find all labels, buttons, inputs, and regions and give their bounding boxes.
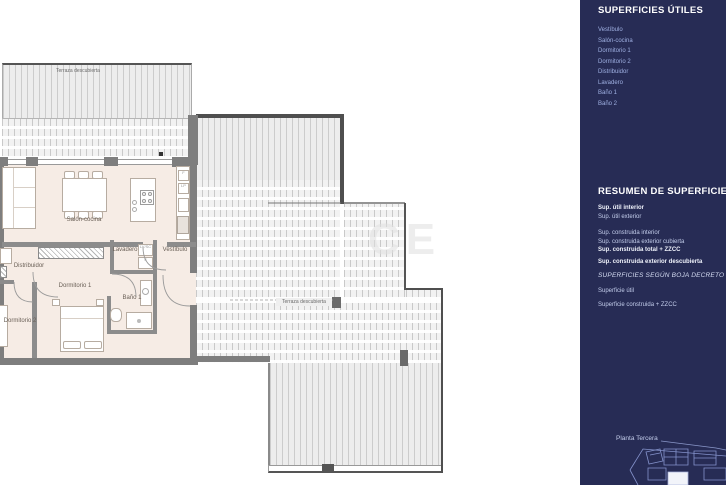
wardrobe — [38, 247, 104, 259]
railing-post — [322, 464, 334, 473]
fridge: F — [178, 170, 189, 181]
wall — [110, 240, 114, 274]
pantry-unit: LP — [178, 183, 189, 194]
nightstand — [96, 299, 104, 306]
burner — [148, 199, 152, 203]
wall — [340, 114, 344, 204]
wall — [110, 270, 157, 274]
resumen-line: Sup. construida interior — [598, 230, 660, 236]
watermark: CE — [368, 215, 441, 265]
label-lavadero: Lavadero — [111, 247, 139, 253]
terrace-main-deck — [196, 180, 340, 300]
sofa-line — [13, 168, 14, 228]
terrace-post — [400, 350, 408, 366]
wall — [0, 280, 14, 284]
sidebar: SUPERFICIES ÚTILES Vestíbulo Salón-cocin… — [580, 0, 726, 485]
toilet — [110, 308, 122, 322]
room-list-item: Salón-cocina — [598, 38, 633, 44]
bed-partial — [0, 305, 8, 347]
wall — [104, 157, 118, 166]
terrace-edge — [268, 363, 270, 473]
label-salon: Salón-cocina — [60, 217, 108, 223]
terrace-post — [332, 297, 341, 308]
sofa-line — [13, 187, 35, 188]
wall — [190, 165, 197, 273]
room-list-item: Vestíbulo — [598, 27, 623, 33]
terrace-railing — [268, 465, 441, 473]
section-marker — [159, 152, 163, 156]
label-dormitorio2: Dormitorio 2 — [2, 318, 38, 324]
nightstand — [52, 299, 60, 306]
resumen-line: Sup. útil exterior — [598, 214, 641, 220]
chair — [78, 171, 89, 179]
label-vestibulo: Vestíbulo — [158, 247, 192, 253]
sidebar-title: SUPERFICIES ÚTILES — [598, 5, 703, 16]
label-bano1: Baño 1 — [120, 295, 144, 301]
chair — [92, 171, 103, 179]
wall — [153, 240, 157, 274]
floorplan-page: F LP LV/SC S — [0, 0, 726, 485]
basin — [142, 288, 149, 295]
room-list-item: Baño 1 — [598, 90, 617, 96]
label-terrace-main: Terraza descubierta — [276, 298, 332, 306]
wall — [196, 356, 270, 362]
wall — [26, 157, 38, 166]
burner — [142, 199, 146, 203]
pillow — [63, 341, 81, 349]
terrace-edge — [441, 288, 443, 473]
terrace-main-deck — [406, 290, 443, 300]
burner — [142, 192, 146, 196]
room-list-item: Lavadero — [598, 80, 623, 86]
floor-label: Planta Tercera — [616, 435, 658, 442]
fixture-partial — [0, 266, 7, 278]
room-list-item: Dormitorio 2 — [598, 59, 631, 65]
decreto-title: SUPERFICIES SEGÚN BOJA DECRETO — [598, 272, 724, 279]
wall — [190, 305, 197, 358]
sink-bowl — [132, 200, 137, 205]
sofa — [2, 167, 36, 229]
dining-table — [62, 178, 107, 212]
chair — [64, 171, 75, 179]
sink-bowl — [132, 207, 137, 212]
terrace-lower-deck — [270, 363, 441, 465]
wall — [196, 114, 344, 118]
counter-sink — [178, 198, 189, 212]
room-list-item: Baño 2 — [598, 101, 617, 107]
room-list-item: Dormitorio 1 — [598, 48, 631, 54]
room-list-item: Distribuidor — [598, 69, 628, 75]
resumen-line: Sup. construida exterior cubierta — [598, 239, 684, 245]
label-terrace-top: Terraza descubierta — [18, 68, 138, 74]
bed-line — [61, 318, 103, 319]
resumen-line: Sup. construida total + ZZCC — [598, 247, 681, 253]
decreto-line: Superficie útil — [598, 288, 634, 294]
sofa-line — [13, 207, 35, 208]
terrace-edge — [406, 288, 443, 290]
shower-drain — [137, 319, 141, 323]
washer: LV/SC — [138, 244, 153, 256]
resumen-title: RESUMEN DE SUPERFICIES — [598, 186, 726, 197]
pillow — [84, 341, 102, 349]
fixture-partial — [0, 248, 12, 264]
wall — [0, 358, 198, 365]
dryer: S — [138, 257, 153, 269]
wall — [153, 274, 157, 334]
resumen-line: Sup. útil interior — [598, 205, 644, 211]
decreto-line: Superficie construida + ZZCC — [598, 302, 677, 308]
burner — [148, 192, 152, 196]
label-distribuidor: Distribuidor — [8, 263, 50, 269]
label-dormitorio1: Dormitorio 1 — [53, 283, 97, 289]
oven-unit — [177, 216, 189, 234]
wall — [107, 330, 157, 334]
terrace-main-upper-deck — [196, 118, 340, 180]
resumen-line: Sup. construida exterior descubierta — [598, 259, 702, 265]
